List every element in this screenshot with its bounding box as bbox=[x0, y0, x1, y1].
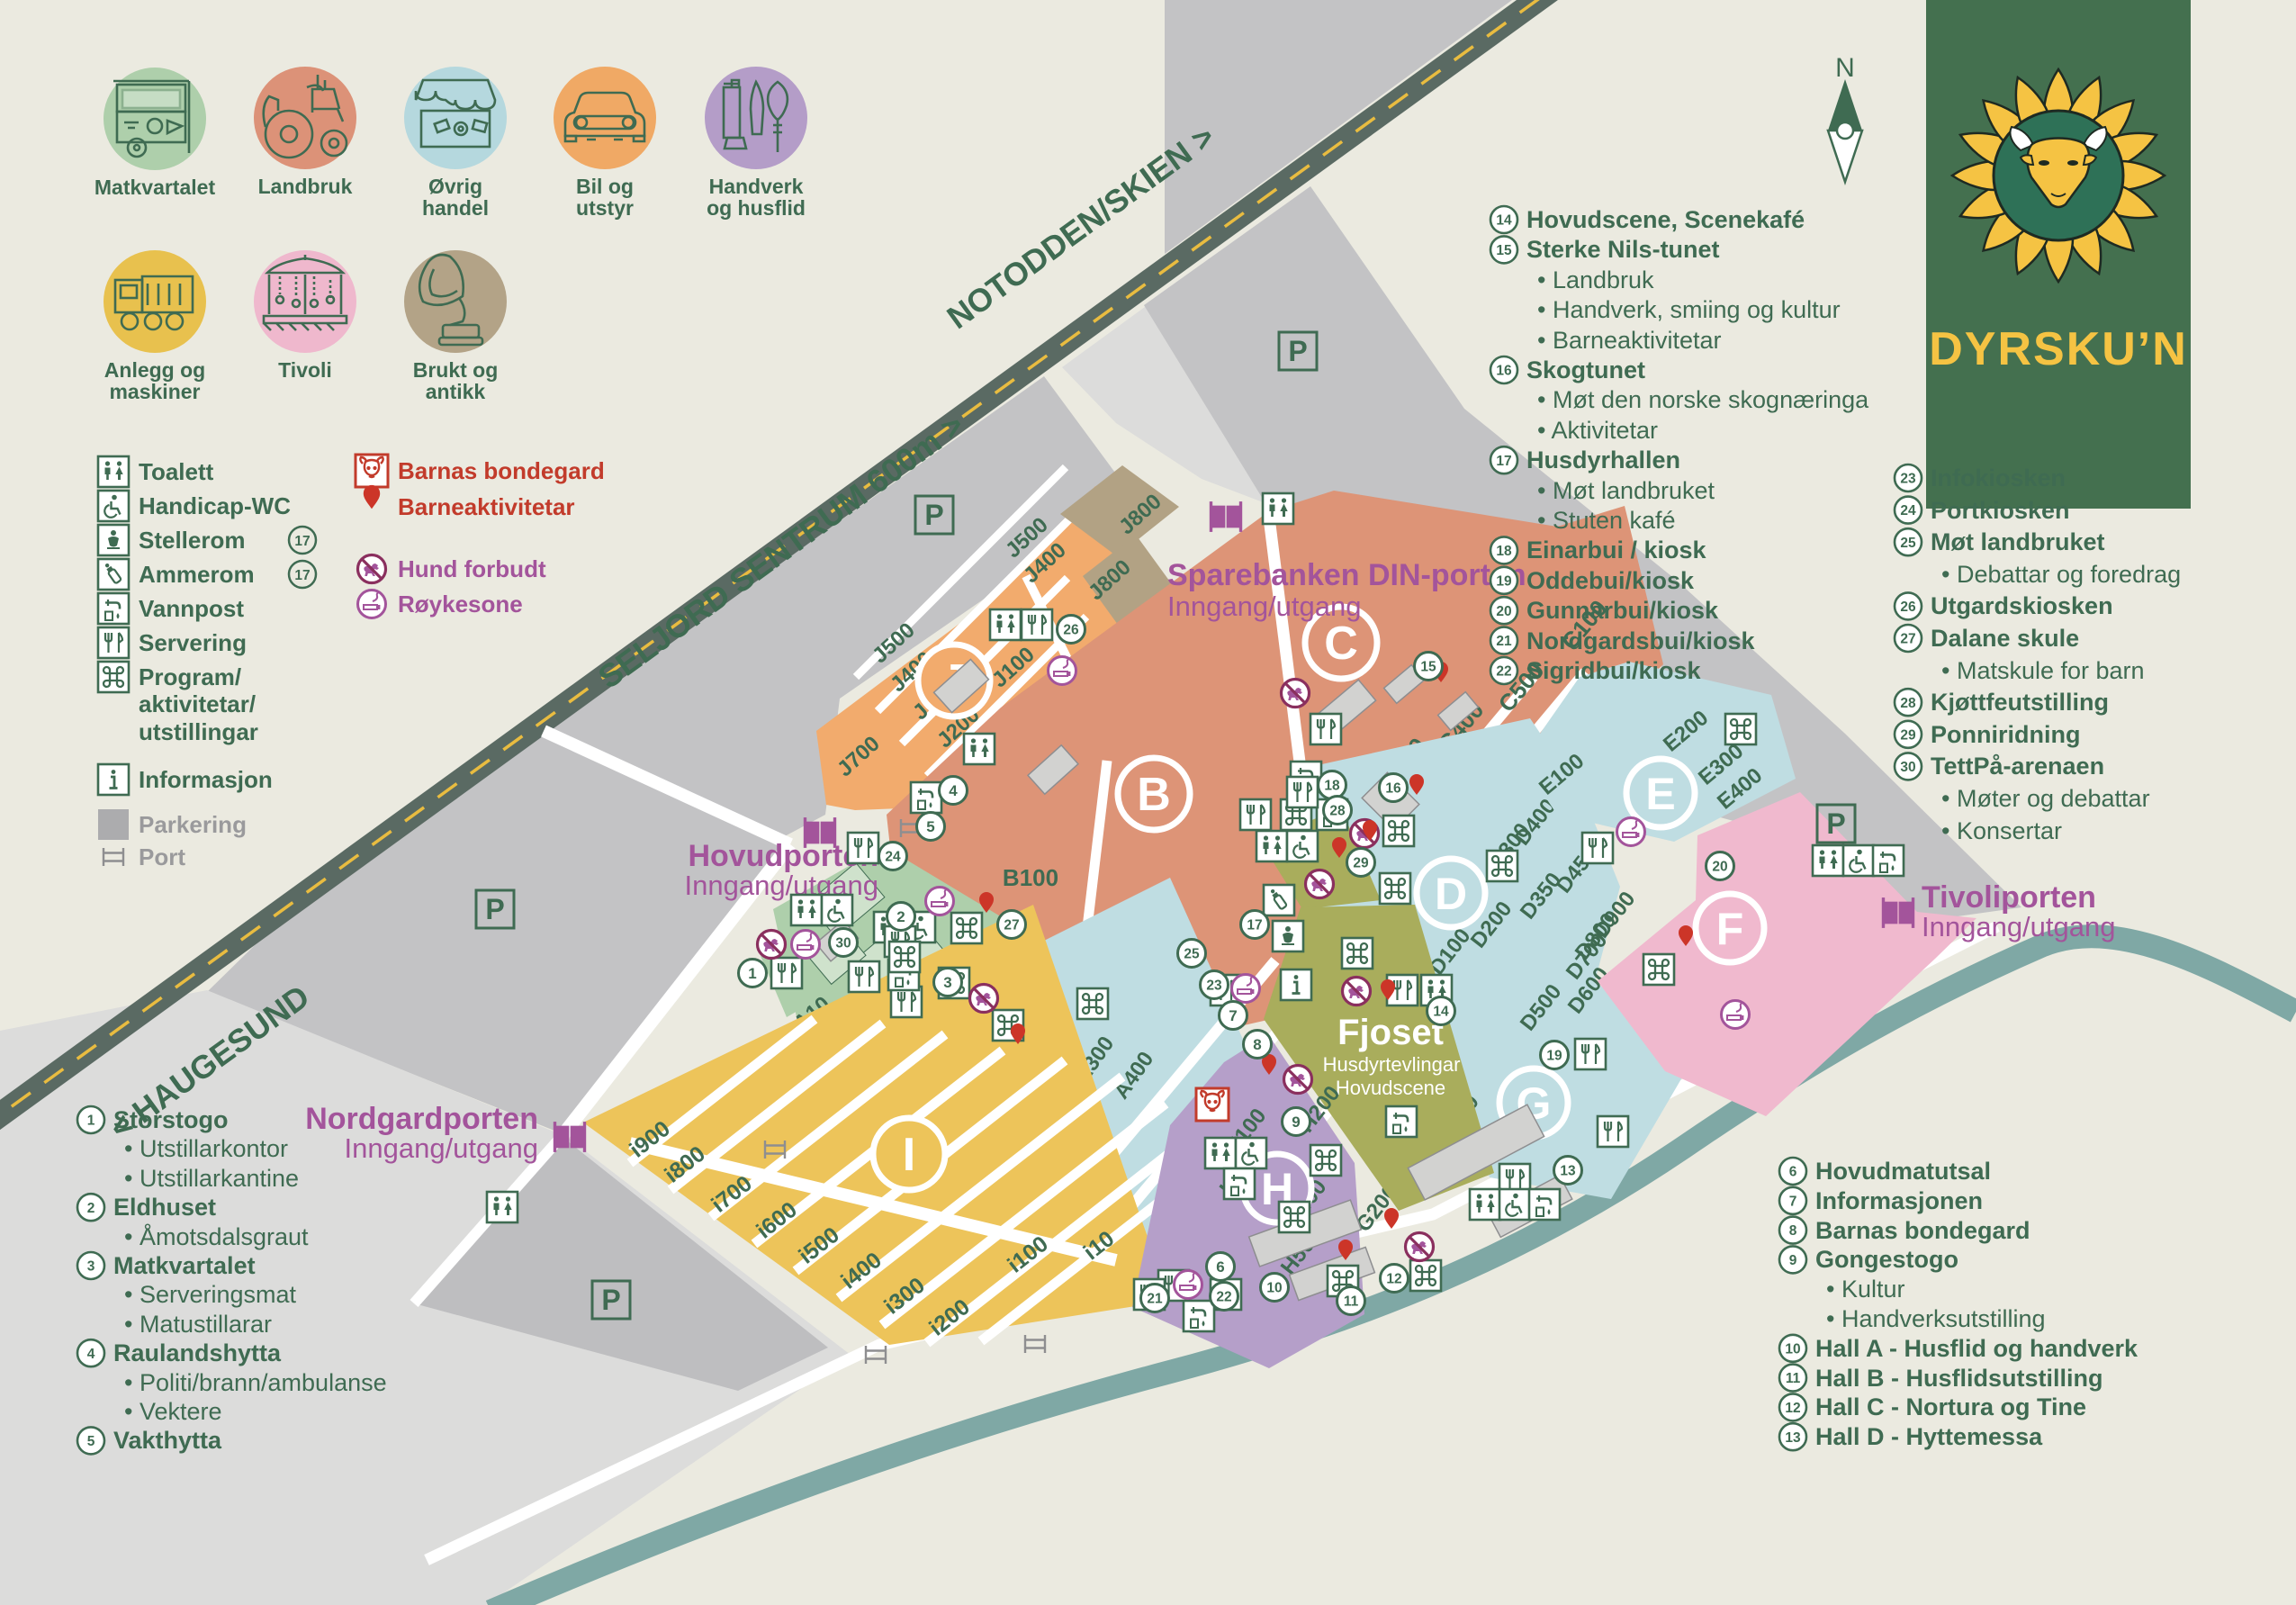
svg-text:5: 5 bbox=[926, 818, 934, 835]
svg-text:1: 1 bbox=[748, 965, 756, 982]
svg-text:• Aktivitetar: • Aktivitetar bbox=[1537, 417, 1658, 444]
svg-text:Port: Port bbox=[139, 843, 185, 870]
svg-text:• Utstillarkontor: • Utstillarkontor bbox=[124, 1135, 288, 1162]
svg-text:Ponniridning: Ponniridning bbox=[1931, 721, 2080, 748]
svg-text:Anlegg og: Anlegg og bbox=[104, 358, 205, 382]
svg-text:Handicap-WC: Handicap-WC bbox=[139, 492, 291, 519]
svg-text:16: 16 bbox=[1496, 364, 1512, 379]
svg-text:11: 11 bbox=[1344, 1294, 1359, 1310]
svg-text:2: 2 bbox=[87, 1201, 95, 1216]
svg-text:• Matskule for barn: • Matskule for barn bbox=[1941, 657, 2145, 684]
svg-text:Øvrig: Øvrig bbox=[428, 175, 482, 198]
svg-text:Vannpost: Vannpost bbox=[139, 595, 244, 622]
svg-text:P: P bbox=[485, 893, 504, 925]
svg-text:• Stuten kafé: • Stuten kafé bbox=[1537, 507, 1676, 534]
svg-text:Sterke Nils-tunet: Sterke Nils-tunet bbox=[1526, 236, 1720, 263]
svg-text:DYRSKU’N: DYRSKU’N bbox=[1929, 323, 2188, 375]
svg-text:Raulandshytta: Raulandshytta bbox=[113, 1339, 282, 1366]
svg-text:Barnas bondegard: Barnas bondegard bbox=[398, 457, 605, 484]
svg-text:25: 25 bbox=[1900, 536, 1916, 551]
svg-text:30: 30 bbox=[835, 936, 851, 951]
svg-text:4: 4 bbox=[87, 1347, 95, 1362]
svg-text:3: 3 bbox=[87, 1259, 95, 1275]
svg-text:Toalett: Toalett bbox=[139, 458, 214, 485]
svg-text:21: 21 bbox=[1496, 634, 1512, 649]
svg-text:TettPå-arenaen: TettPå-arenaen bbox=[1931, 753, 2104, 780]
svg-text:Storstogo: Storstogo bbox=[113, 1106, 229, 1133]
svg-text:12: 12 bbox=[1785, 1401, 1800, 1416]
svg-text:Hall D - Hyttemessa: Hall D - Hyttemessa bbox=[1815, 1423, 2043, 1450]
svg-text:4: 4 bbox=[949, 782, 958, 799]
svg-text:Matkvartalet: Matkvartalet bbox=[95, 176, 216, 199]
svg-text:• Landbruk: • Landbruk bbox=[1537, 266, 1654, 293]
svg-text:Handverk: Handverk bbox=[709, 175, 804, 198]
svg-text:6: 6 bbox=[1789, 1165, 1797, 1180]
svg-text:15: 15 bbox=[1496, 243, 1512, 258]
svg-text:12: 12 bbox=[1386, 1272, 1401, 1287]
svg-text:F: F bbox=[1716, 904, 1744, 954]
svg-text:• Handverksutstilling: • Handverksutstilling bbox=[1826, 1305, 2046, 1332]
svg-text:8: 8 bbox=[1253, 1036, 1261, 1053]
svg-text:B: B bbox=[1137, 769, 1171, 821]
svg-text:Husdyrhallen: Husdyrhallen bbox=[1526, 446, 1680, 473]
svg-text:15: 15 bbox=[1420, 660, 1436, 675]
svg-text:20: 20 bbox=[1712, 860, 1727, 875]
svg-text:Parkering: Parkering bbox=[139, 811, 247, 838]
svg-text:Inngang/utgang: Inngang/utgang bbox=[1922, 911, 2116, 942]
svg-text:Barnas bondegard: Barnas bondegard bbox=[1815, 1217, 2030, 1244]
svg-text:D: D bbox=[1435, 869, 1467, 919]
svg-text:7: 7 bbox=[1789, 1194, 1797, 1209]
svg-text:Hovudscene, Scenekafé: Hovudscene, Scenekafé bbox=[1526, 206, 1805, 233]
svg-text:B100: B100 bbox=[1003, 864, 1058, 891]
svg-text:Barneaktivitetar: Barneaktivitetar bbox=[398, 493, 575, 520]
svg-text:Fjoset: Fjoset bbox=[1337, 1013, 1444, 1052]
svg-text:Hovudscene: Hovudscene bbox=[1336, 1077, 1445, 1099]
svg-text:17: 17 bbox=[294, 568, 310, 583]
svg-text:14: 14 bbox=[1433, 1005, 1449, 1020]
svg-text:23: 23 bbox=[1206, 978, 1222, 994]
svg-text:Hund forbudt: Hund forbudt bbox=[398, 555, 546, 582]
svg-text:Hall C - Nortura og Tine: Hall C - Nortura og Tine bbox=[1815, 1393, 2086, 1420]
svg-text:10: 10 bbox=[1785, 1341, 1800, 1357]
svg-text:9: 9 bbox=[1789, 1253, 1797, 1268]
svg-text:30: 30 bbox=[1900, 760, 1915, 775]
svg-text:Brukt og: Brukt og bbox=[413, 358, 499, 382]
svg-text:Eldhuset: Eldhuset bbox=[113, 1194, 216, 1221]
svg-text:16: 16 bbox=[1385, 781, 1401, 797]
svg-text:• Handverk, smiing og kultur: • Handverk, smiing og kultur bbox=[1537, 296, 1841, 323]
svg-text:Informasjonen: Informasjonen bbox=[1815, 1187, 1983, 1214]
svg-text:P: P bbox=[601, 1284, 620, 1316]
svg-text:1: 1 bbox=[87, 1114, 95, 1129]
svg-text:Landbruk: Landbruk bbox=[258, 175, 353, 198]
svg-text:24: 24 bbox=[885, 850, 901, 865]
svg-text:Ammerom: Ammerom bbox=[139, 561, 255, 588]
svg-text:maskiner: maskiner bbox=[109, 380, 200, 403]
svg-text:18: 18 bbox=[1496, 544, 1512, 559]
svg-text:• Kultur: • Kultur bbox=[1826, 1276, 1905, 1303]
svg-text:10: 10 bbox=[1266, 1281, 1282, 1296]
svg-text:Nordgardporten: Nordgardporten bbox=[305, 1102, 538, 1136]
svg-text:29: 29 bbox=[1900, 727, 1916, 743]
svg-text:C: C bbox=[1324, 618, 1358, 670]
svg-text:3: 3 bbox=[943, 974, 951, 991]
svg-text:Servering: Servering bbox=[139, 629, 247, 656]
svg-text:Oddebui/kiosk: Oddebui/kiosk bbox=[1526, 567, 1695, 594]
svg-text:• Politi/brann/ambulanse: • Politi/brann/ambulanse bbox=[124, 1369, 387, 1396]
svg-text:handel: handel bbox=[422, 196, 489, 220]
svg-text:• Konsertar: • Konsertar bbox=[1941, 817, 2062, 844]
svg-text:17: 17 bbox=[1247, 918, 1262, 933]
svg-text:aktivitetar/: aktivitetar/ bbox=[139, 690, 256, 717]
svg-text:Einarbui / kiosk: Einarbui / kiosk bbox=[1526, 537, 1707, 564]
svg-text:E: E bbox=[1645, 769, 1675, 819]
svg-text:• Serveringsmat: • Serveringsmat bbox=[124, 1281, 297, 1308]
svg-text:25: 25 bbox=[1184, 947, 1200, 962]
svg-text:26: 26 bbox=[1900, 600, 1916, 615]
svg-text:29: 29 bbox=[1353, 856, 1369, 871]
svg-text:19: 19 bbox=[1496, 573, 1512, 589]
svg-text:Nordgardsbui/kiosk: Nordgardsbui/kiosk bbox=[1526, 627, 1756, 654]
svg-text:8: 8 bbox=[1789, 1223, 1797, 1239]
svg-text:I: I bbox=[903, 1129, 915, 1181]
svg-text:Vakthytta: Vakthytta bbox=[113, 1427, 222, 1454]
svg-text:• Matustillarar: • Matustillarar bbox=[124, 1311, 272, 1338]
svg-text:Dalane skule: Dalane skule bbox=[1931, 625, 2079, 652]
svg-text:• Åmotsdalsgraut: • Åmotsdalsgraut bbox=[124, 1222, 309, 1250]
svg-text:Infokiosken: Infokiosken bbox=[1931, 464, 2066, 491]
svg-text:24: 24 bbox=[1900, 503, 1916, 518]
svg-text:Gunnarbui/kiosk: Gunnarbui/kiosk bbox=[1526, 597, 1719, 624]
svg-text:11: 11 bbox=[1786, 1371, 1801, 1386]
svg-text:Tivoli: Tivoli bbox=[278, 358, 332, 382]
svg-text:Stellerom: Stellerom bbox=[139, 527, 246, 554]
svg-text:utstillingar: utstillingar bbox=[139, 718, 258, 745]
svg-text:og husflid: og husflid bbox=[707, 196, 806, 220]
svg-text:9: 9 bbox=[1292, 1114, 1300, 1131]
svg-text:Skogtunet: Skogtunet bbox=[1526, 356, 1645, 383]
svg-text:Matkvartalet: Matkvartalet bbox=[113, 1252, 256, 1279]
svg-text:28: 28 bbox=[1900, 696, 1916, 711]
svg-text:• Vektere: • Vektere bbox=[124, 1398, 222, 1425]
svg-text:Bil og: Bil og bbox=[576, 175, 634, 198]
svg-text:• Møt landbruket: • Møt landbruket bbox=[1537, 477, 1715, 504]
svg-text:2: 2 bbox=[896, 908, 905, 925]
svg-text:20: 20 bbox=[1496, 604, 1511, 619]
svg-text:Hovudmatutsal: Hovudmatutsal bbox=[1815, 1158, 1991, 1185]
svg-text:17: 17 bbox=[294, 534, 310, 549]
svg-text:23: 23 bbox=[1900, 472, 1916, 487]
svg-text:Inngang/utgang: Inngang/utgang bbox=[345, 1132, 539, 1164]
svg-text:antikk: antikk bbox=[426, 380, 486, 403]
svg-text:22: 22 bbox=[1216, 1290, 1231, 1305]
svg-text:utstyr: utstyr bbox=[576, 196, 634, 220]
svg-text:28: 28 bbox=[1329, 804, 1346, 819]
svg-text:19: 19 bbox=[1546, 1049, 1562, 1064]
svg-text:P: P bbox=[1288, 335, 1307, 367]
svg-text:• Møter og debattar: • Møter og debattar bbox=[1941, 785, 2150, 812]
svg-text:P: P bbox=[1826, 807, 1845, 840]
svg-text:Røykesone: Røykesone bbox=[398, 591, 523, 618]
svg-text:26: 26 bbox=[1063, 623, 1079, 638]
svg-text:Møt landbruket: Møt landbruket bbox=[1931, 528, 2105, 555]
svg-text:• Barneaktivitetar: • Barneaktivitetar bbox=[1537, 327, 1722, 354]
svg-text:Tivoliporten: Tivoliporten bbox=[1922, 880, 2096, 915]
svg-text:27: 27 bbox=[1900, 632, 1915, 647]
svg-text:13: 13 bbox=[1785, 1430, 1801, 1446]
svg-text:22: 22 bbox=[1496, 664, 1511, 680]
svg-text:Utgardskiosken: Utgardskiosken bbox=[1931, 592, 2113, 619]
svg-text:Hall B - Husflidsutstilling: Hall B - Husflidsutstilling bbox=[1815, 1365, 2103, 1392]
svg-text:• Debattar og foredrag: • Debattar og foredrag bbox=[1941, 561, 2181, 588]
svg-text:7: 7 bbox=[1229, 1007, 1237, 1024]
svg-text:Kjøttfeutstilling: Kjøttfeutstilling bbox=[1931, 689, 2109, 716]
svg-text:27: 27 bbox=[1004, 918, 1019, 933]
svg-text:14: 14 bbox=[1496, 213, 1512, 229]
svg-text:5: 5 bbox=[87, 1434, 95, 1449]
svg-text:Gongestogo: Gongestogo bbox=[1815, 1246, 1958, 1273]
svg-text:13: 13 bbox=[1560, 1164, 1576, 1179]
svg-text:17: 17 bbox=[1496, 454, 1511, 469]
svg-text:21: 21 bbox=[1147, 1292, 1163, 1307]
svg-text:Program/: Program/ bbox=[139, 663, 241, 690]
svg-text:6: 6 bbox=[1216, 1258, 1224, 1276]
svg-text:Portkiosken: Portkiosken bbox=[1931, 497, 2070, 524]
svg-text:Informasjon: Informasjon bbox=[139, 766, 273, 793]
svg-text:• Utstillarkantine: • Utstillarkantine bbox=[124, 1165, 299, 1192]
svg-text:Inngang/utgang: Inngang/utgang bbox=[1167, 591, 1362, 622]
svg-text:Sigridbui/kiosk: Sigridbui/kiosk bbox=[1526, 657, 1702, 684]
svg-text:• Møt den norske skognæringa: • Møt den norske skognæringa bbox=[1537, 386, 1869, 413]
svg-text:18: 18 bbox=[1324, 779, 1340, 794]
svg-text:Husdyrtevlingar: Husdyrtevlingar bbox=[1323, 1053, 1461, 1076]
svg-text:N: N bbox=[1835, 53, 1855, 83]
svg-text:Hall A - Husflid og handverk: Hall A - Husflid og handverk bbox=[1815, 1335, 2138, 1362]
svg-text:P: P bbox=[924, 499, 943, 531]
svg-text:Sparebanken DIN-porten: Sparebanken DIN-porten bbox=[1167, 558, 1526, 592]
